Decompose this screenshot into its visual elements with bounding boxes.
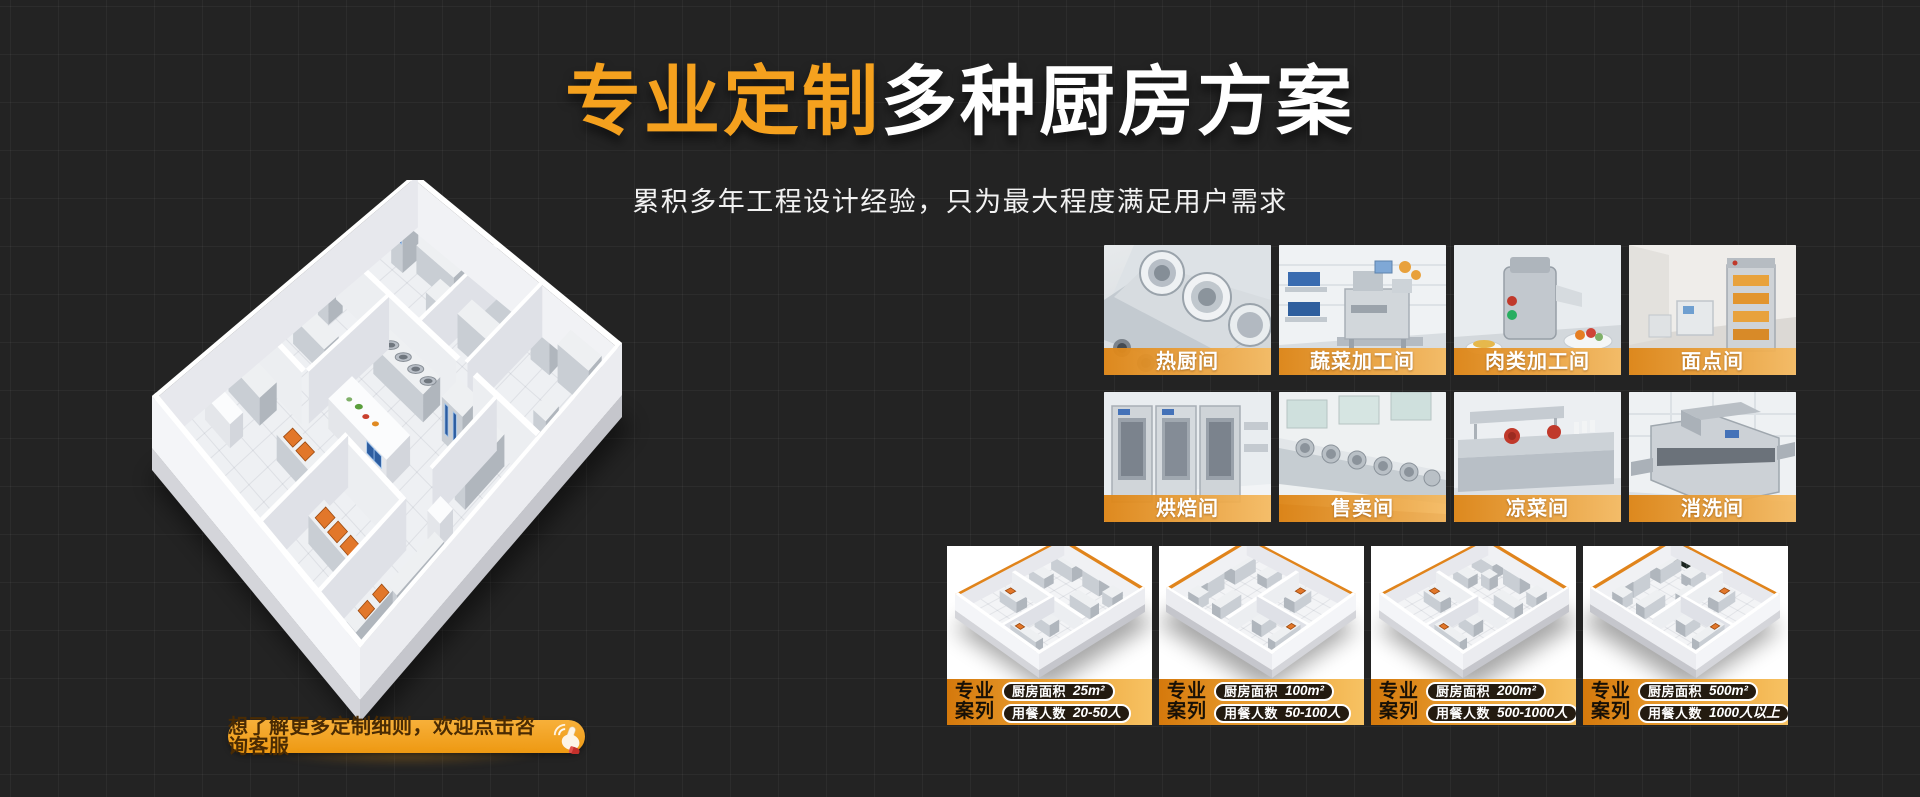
case-kitchen-render bbox=[1583, 546, 1788, 679]
title-rest: 多种厨房方案 bbox=[881, 60, 1355, 145]
case-kitchen-render bbox=[1371, 546, 1576, 679]
room-tile-washing: 消洗间 bbox=[1629, 392, 1796, 522]
room-tile-label: 售卖间 bbox=[1331, 499, 1394, 519]
room-tile-grid: 热厨间 蔬菜加工间 bbox=[1104, 245, 1796, 522]
case-card-200: 专业 案列 厨房面积200m² 用餐人数500-1000人 bbox=[1371, 546, 1576, 725]
page-title: 专业定制多种厨房方案 bbox=[0, 62, 1920, 144]
case-pill-diners: 用餐人数20-50人 bbox=[1002, 704, 1131, 723]
room-tile-meat: 肉类加工间 bbox=[1454, 245, 1621, 375]
kitchen-3d-illustration bbox=[100, 180, 720, 750]
case-kitchen-render bbox=[947, 546, 1152, 679]
title-highlight: 专业定制 bbox=[565, 60, 881, 145]
room-tile-label: 蔬菜加工间 bbox=[1310, 352, 1415, 372]
case-pill-diners: 用餐人数50-100人 bbox=[1214, 704, 1351, 723]
case-card-25: 专业 案列 厨房面积25m² 用餐人数20-50人 bbox=[947, 546, 1152, 725]
case-pill-area: 厨房面积200m² bbox=[1426, 682, 1546, 701]
room-tile-baking: 烘焙间 bbox=[1104, 392, 1271, 522]
room-tile-label: 热厨间 bbox=[1156, 352, 1219, 372]
case-pill-area: 厨房面积100m² bbox=[1214, 682, 1334, 701]
room-tile-hot-kitchen: 热厨间 bbox=[1104, 245, 1271, 375]
case-kitchen-render bbox=[1159, 546, 1364, 679]
room-tile-cold-dish: 凉菜间 bbox=[1454, 392, 1621, 522]
case-pill-area: 厨房面积500m² bbox=[1638, 682, 1758, 701]
case-pill-diners: 用餐人数500-1000人 bbox=[1426, 704, 1576, 723]
case-tag: 专业 案列 bbox=[1167, 682, 1207, 722]
case-card-100: 专业 案列 厨房面积100m² 用餐人数50-100人 bbox=[1159, 546, 1364, 725]
cta-label: 想了解更多定制细则，欢迎点击咨询客服 bbox=[228, 717, 545, 757]
room-tile-label: 烘焙间 bbox=[1156, 499, 1219, 519]
case-pill-area: 厨房面积25m² bbox=[1002, 682, 1115, 701]
room-tile-label: 消洗间 bbox=[1681, 499, 1744, 519]
room-tile-serving: 售卖间 bbox=[1279, 392, 1446, 522]
room-tile-pastry: 面点间 bbox=[1629, 245, 1796, 375]
room-tile-vegetable: 蔬菜加工间 bbox=[1279, 245, 1446, 375]
case-card-500: 专业 案列 厨房面积500m² 用餐人数1000人以上 bbox=[1583, 546, 1788, 725]
click-hand-icon bbox=[551, 722, 585, 759]
promo-banner: 专业定制多种厨房方案 累积多年工程设计经验，只为最大程度满足用户需求 bbox=[0, 0, 1920, 797]
case-tag: 专业 案列 bbox=[1591, 682, 1631, 722]
case-tag: 专业 案列 bbox=[1379, 682, 1419, 722]
room-tile-label: 面点间 bbox=[1681, 352, 1744, 372]
room-tile-label: 肉类加工间 bbox=[1485, 352, 1590, 372]
room-tile-label: 凉菜间 bbox=[1506, 499, 1569, 519]
case-tag: 专业 案列 bbox=[955, 682, 995, 722]
case-card-row: 专业 案列 厨房面积25m² 用餐人数20-50人 专业 bbox=[947, 546, 1788, 725]
cta-button[interactable]: 想了解更多定制细则，欢迎点击咨询客服 bbox=[228, 720, 585, 753]
case-pill-diners: 用餐人数1000人以上 bbox=[1638, 704, 1788, 723]
